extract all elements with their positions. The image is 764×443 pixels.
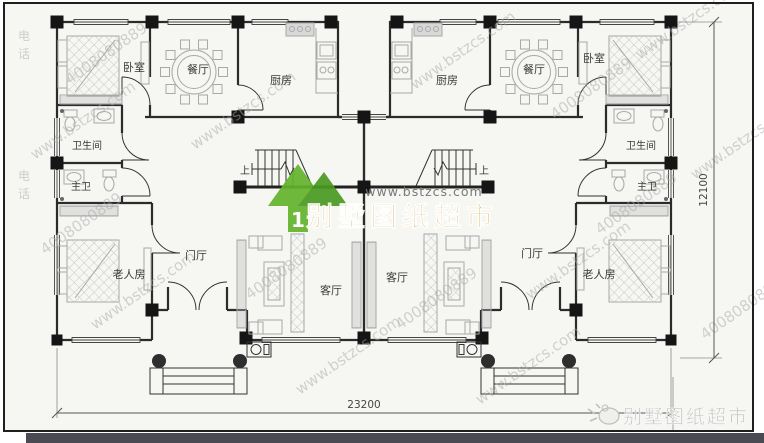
label-stairs-up: 上 (240, 165, 250, 177)
bottom-dark-bar (26, 433, 764, 443)
label-living: 客厅 (320, 283, 342, 297)
label-elder-room: 老人房 (113, 268, 146, 281)
svg-text:1: 1 (291, 208, 305, 232)
label-dining: 餐厅 (523, 62, 545, 76)
label-foyer: 门厅 (185, 248, 207, 262)
svg-text:话: 话 (18, 187, 30, 201)
label-stairs-up: 上 (479, 165, 489, 177)
label-foyer: 门厅 (521, 246, 543, 260)
label-kitchen: 厨房 (436, 74, 458, 87)
corner-logo-title: 别墅图纸超市 (623, 406, 749, 428)
label-dining: 餐厅 (187, 62, 209, 76)
floor-plan-image: 4008080889 www.bstzcs.com 4008080889 www… (0, 0, 764, 443)
label-bedroom: 卧室 (583, 51, 605, 65)
center-logo-url: www.bstzcs.com (365, 184, 482, 199)
label-bathroom: 卫生间 (72, 139, 102, 152)
label-living: 客厅 (386, 270, 408, 284)
label-master-bath: 主卫 (71, 181, 91, 193)
svg-text:电: 电 (18, 29, 30, 43)
svg-text:话: 话 (18, 47, 30, 61)
label-master-bath: 主卫 (637, 181, 657, 193)
label-elder-room: 老人房 (583, 268, 616, 281)
dimension-height-text: 12100 (698, 173, 710, 206)
label-kitchen: 厨房 (270, 74, 292, 87)
floor-plan-svg: 4008080889 www.bstzcs.com 4008080889 www… (0, 0, 764, 443)
label-bedroom: 卧室 (123, 60, 145, 74)
svg-text:电: 电 (18, 169, 30, 183)
center-logo-title: 别墅图纸超市 (306, 201, 498, 233)
label-bathroom: 卫生间 (626, 139, 656, 152)
dimension-width-text: 23200 (347, 399, 380, 411)
